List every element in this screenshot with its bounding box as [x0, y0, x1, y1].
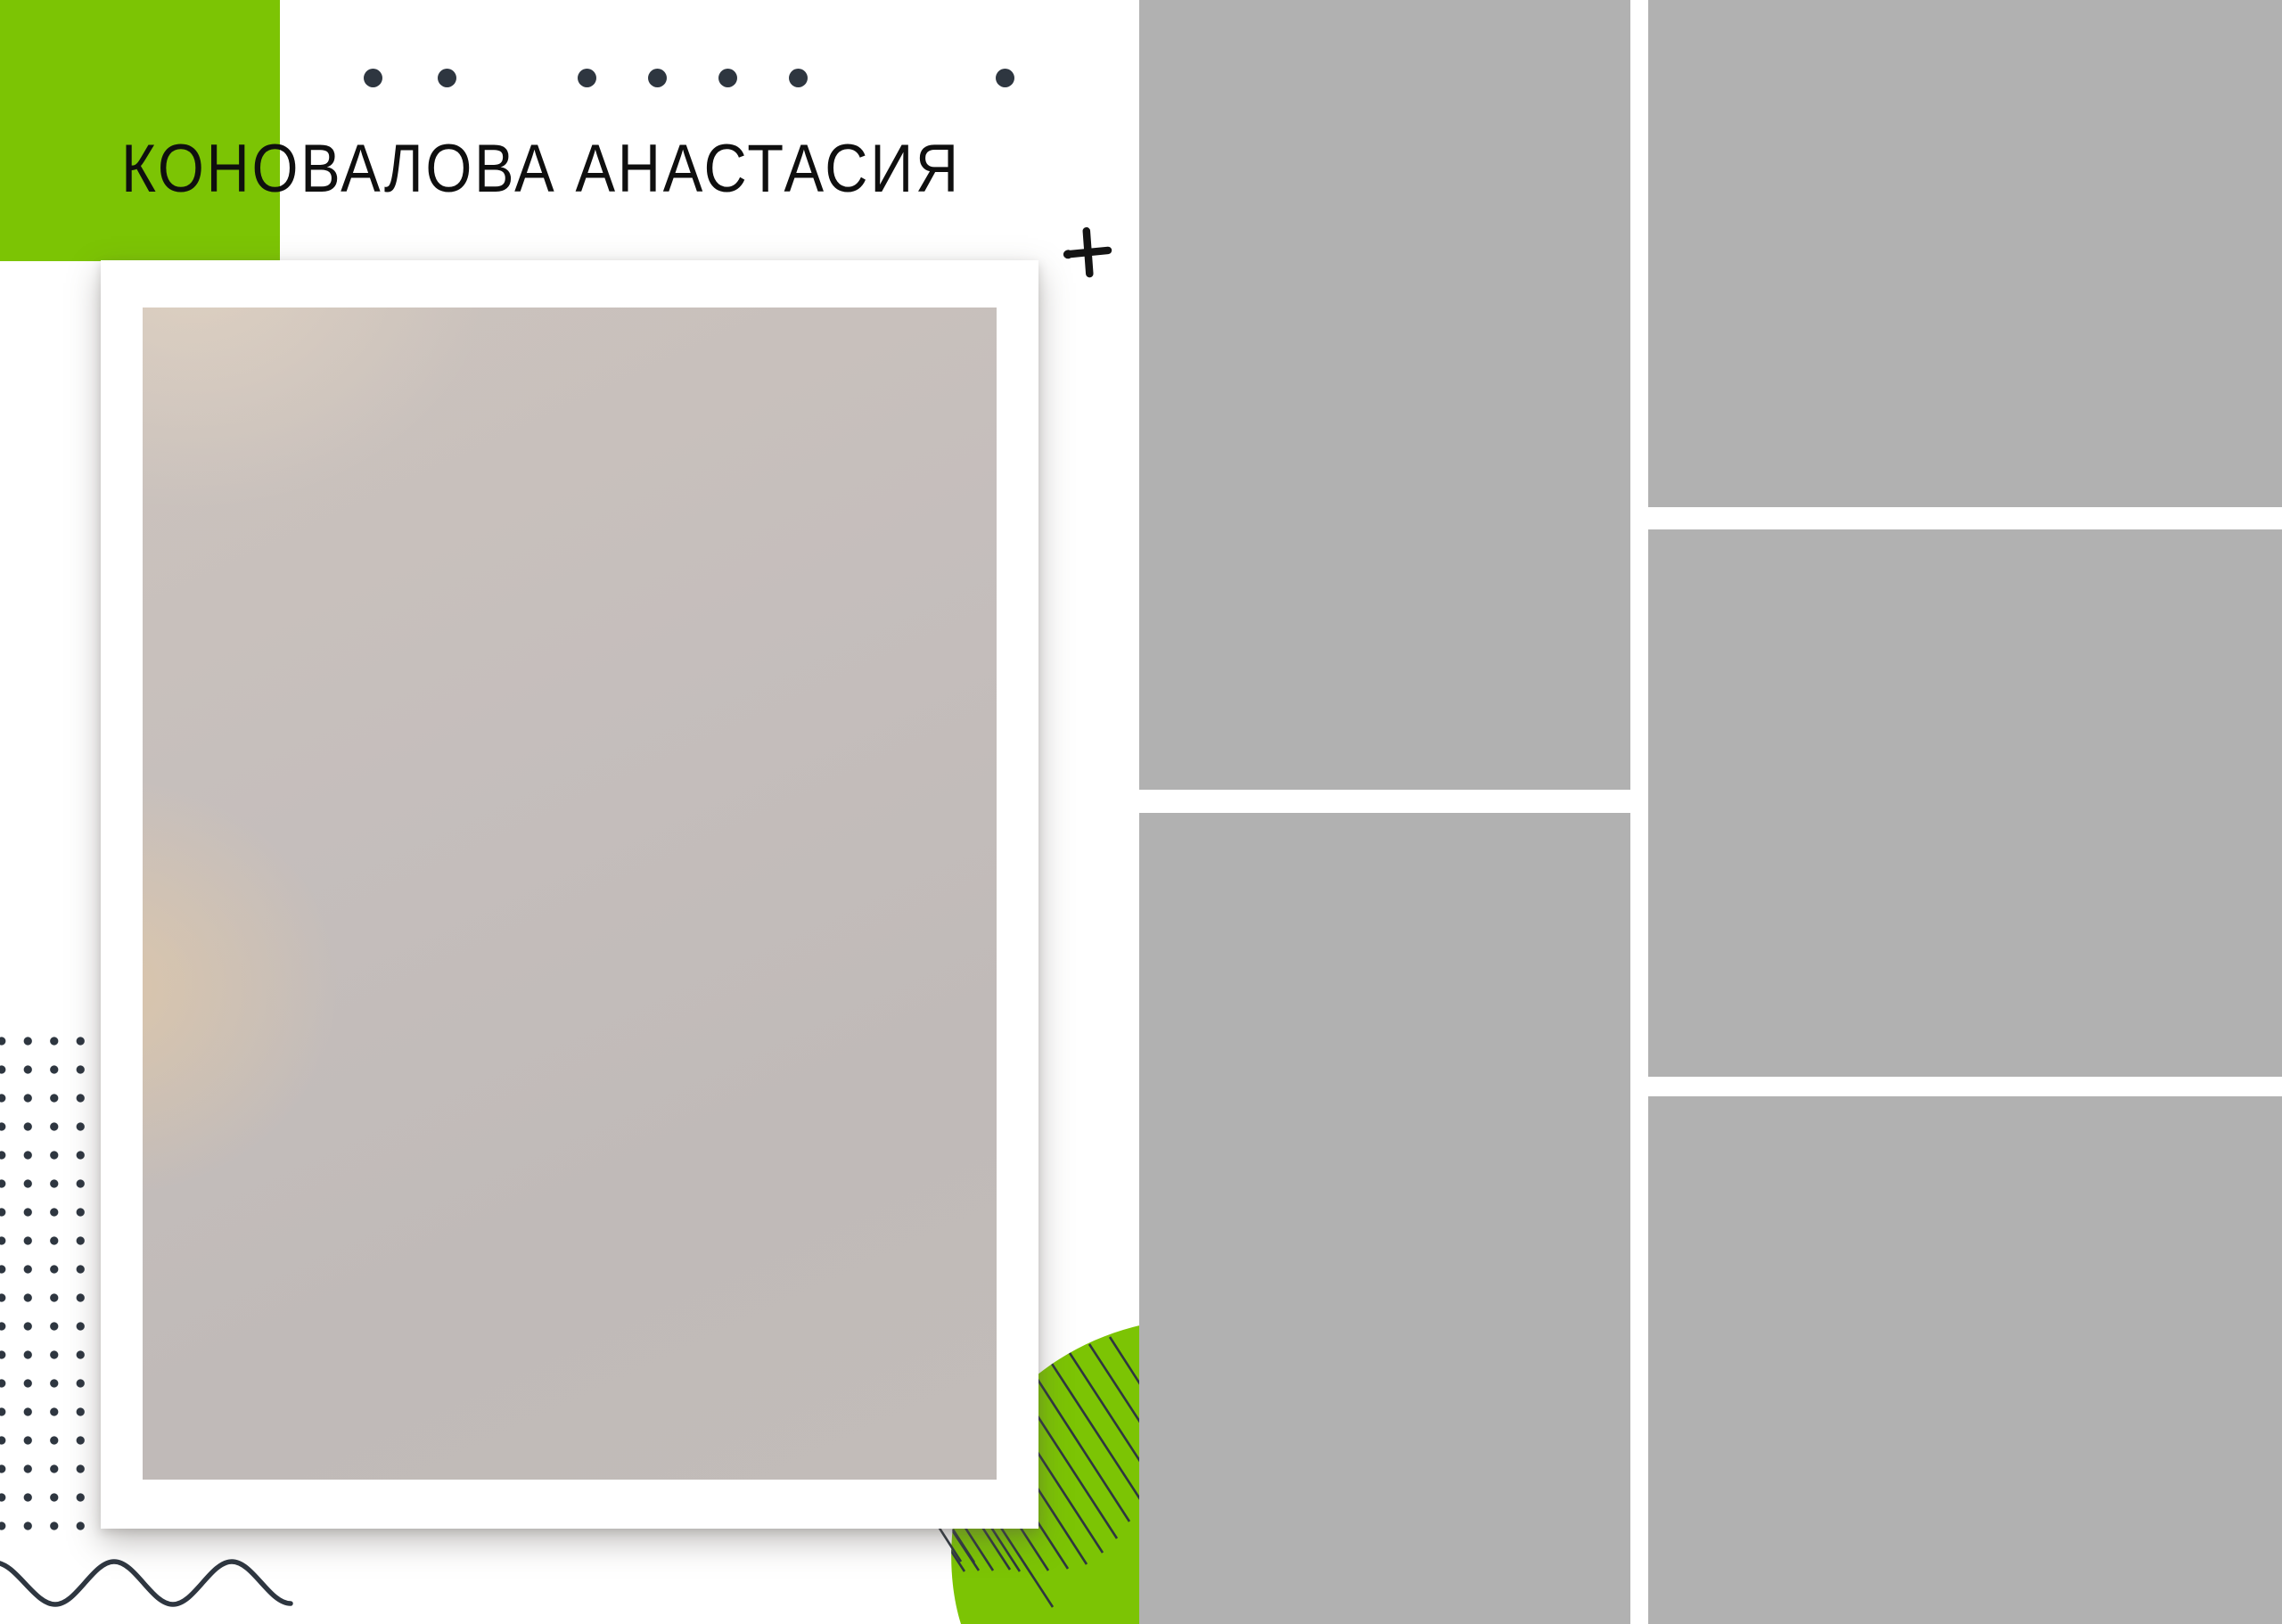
photo-slot-middle-bottom[interactable]: [1139, 813, 1630, 1624]
photo-slot-right-top[interactable]: [1648, 0, 2282, 507]
photo-slot-right-bottom[interactable]: [1648, 1096, 2282, 1624]
photo-slot-middle-top[interactable]: [1139, 0, 1630, 790]
album-page: КОНОВАЛОВА АНАСТАСИЯ: [0, 0, 2282, 1624]
photo-slot-right-middle[interactable]: [1648, 529, 2282, 1077]
